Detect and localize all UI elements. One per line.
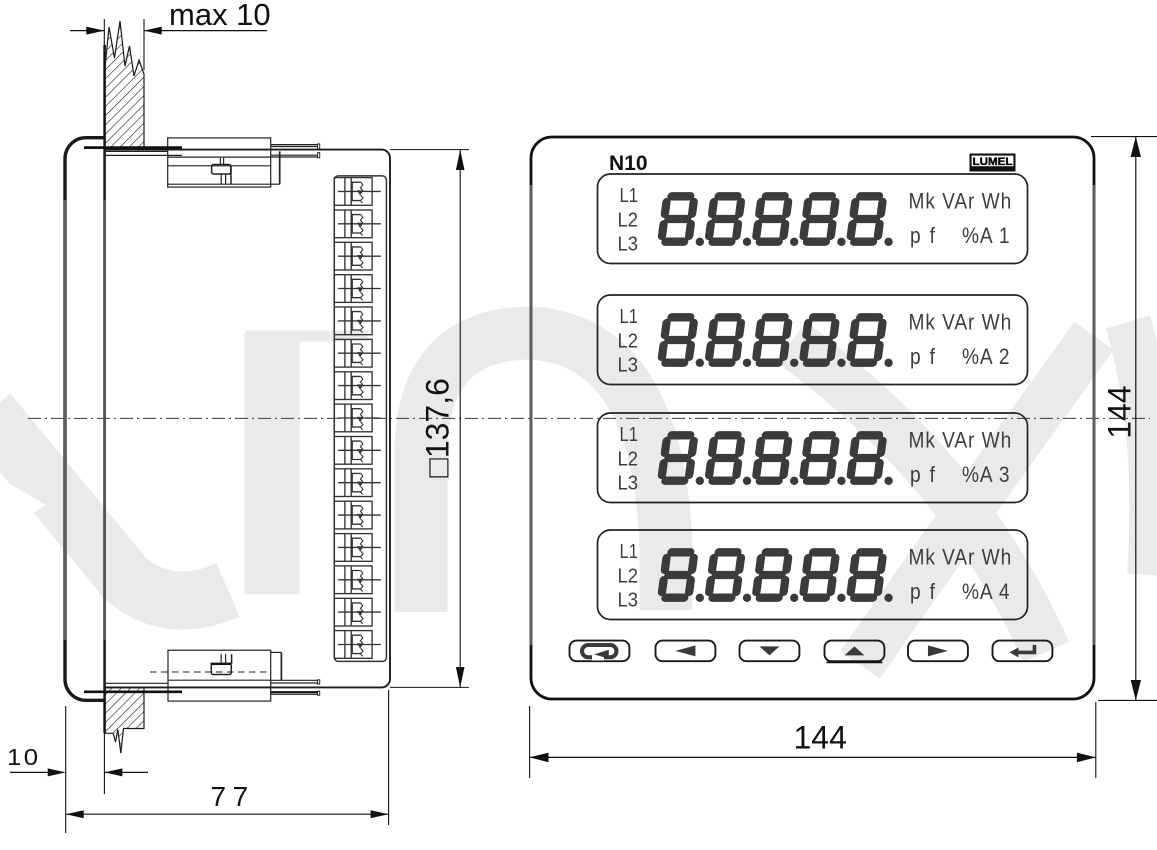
svg-text:pf: pf (910, 224, 935, 249)
svg-text:Mk VAr Wh: Mk VAr Wh (909, 428, 1013, 453)
svg-text:L2: L2 (618, 208, 639, 231)
svg-text:Mk VAr Wh: Mk VAr Wh (909, 545, 1013, 570)
svg-text:144: 144 (1102, 385, 1138, 438)
svg-text:L2: L2 (618, 447, 639, 470)
svg-text:L3: L3 (618, 232, 639, 255)
svg-text:Mk VAr Wh: Mk VAr Wh (909, 189, 1013, 214)
svg-text:%A 3: %A 3 (962, 463, 1010, 488)
svg-text:77: 77 (211, 781, 255, 812)
svg-text:%A 4: %A 4 (962, 580, 1010, 605)
svg-text:L3: L3 (618, 353, 639, 376)
svg-text:max 10: max 10 (169, 0, 271, 32)
svg-text:L3: L3 (618, 471, 639, 494)
svg-text:N10: N10 (609, 152, 648, 175)
svg-text:pf: pf (910, 345, 935, 370)
svg-text:L3: L3 (618, 588, 639, 611)
svg-text:10: 10 (7, 745, 41, 770)
svg-text:L2: L2 (618, 564, 639, 587)
svg-text:L1: L1 (620, 184, 639, 207)
svg-text:%A 1: %A 1 (962, 224, 1010, 249)
svg-text:L2: L2 (618, 329, 639, 352)
svg-text:□137,6: □137,6 (420, 378, 456, 477)
svg-text:L1: L1 (620, 305, 639, 328)
svg-text:%A 2: %A 2 (962, 345, 1010, 370)
svg-text:L1: L1 (620, 540, 639, 563)
svg-text:L1: L1 (620, 423, 639, 446)
svg-text:LUMEL: LUMEL (973, 156, 1013, 168)
svg-text:144: 144 (794, 720, 847, 756)
svg-text:Mk VAr Wh: Mk VAr Wh (909, 310, 1013, 335)
